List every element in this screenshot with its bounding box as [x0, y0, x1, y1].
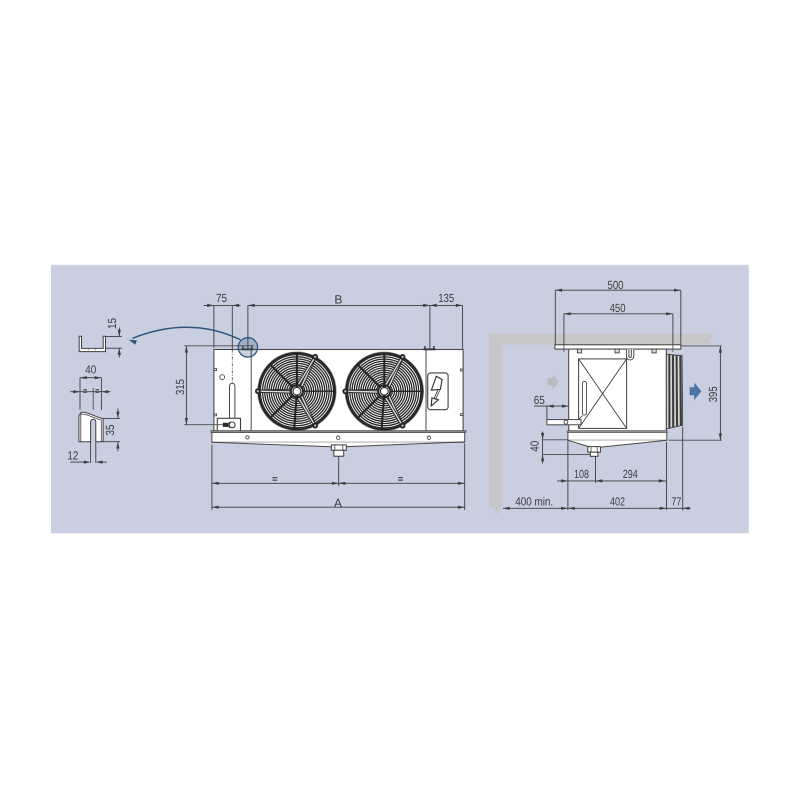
svg-text:500: 500 [608, 278, 624, 292]
svg-text:135: 135 [438, 291, 454, 305]
svg-text:315: 315 [173, 379, 187, 395]
svg-text:40: 40 [85, 363, 96, 377]
svg-text:402: 402 [610, 494, 625, 508]
svg-text:B: B [334, 292, 342, 306]
svg-text:108: 108 [574, 467, 589, 481]
svg-text:395: 395 [706, 386, 720, 402]
svg-text:12: 12 [67, 448, 78, 462]
svg-text:65: 65 [534, 393, 545, 407]
svg-text:75: 75 [216, 291, 227, 305]
svg-text:40: 40 [528, 440, 542, 451]
svg-text:15: 15 [105, 318, 119, 329]
svg-text:35: 35 [103, 424, 117, 435]
svg-text:450: 450 [610, 301, 626, 315]
svg-text:294: 294 [623, 467, 638, 481]
svg-text:A: A [334, 496, 342, 510]
svg-text:400 min.: 400 min. [515, 494, 553, 508]
svg-text:77: 77 [671, 494, 681, 508]
